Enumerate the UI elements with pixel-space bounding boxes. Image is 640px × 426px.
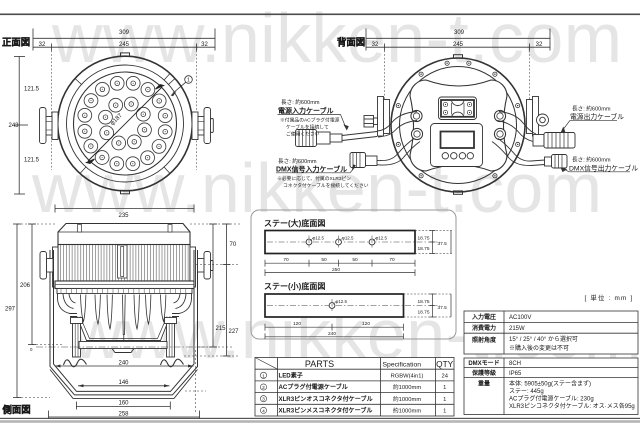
svg-text:約1000mm: 約1000mm [393, 383, 422, 391]
svg-text:消費電力: 消費電力 [472, 324, 496, 332]
svg-text:側面図: 側面図 [2, 404, 31, 415]
svg-text:121.5: 121.5 [24, 158, 40, 164]
svg-text:ステー(大)底面図: ステー(大)底面図 [264, 218, 325, 228]
svg-text:電源入力ケーブル: 電源入力ケーブル [278, 106, 334, 115]
svg-text:146: 146 [118, 380, 129, 386]
svg-text:AC100V: AC100V [509, 315, 531, 321]
svg-text:DMX信号入力ケーブル: DMX信号入力ケーブル [276, 165, 347, 174]
svg-text:120: 120 [362, 321, 370, 327]
svg-text:240: 240 [118, 361, 129, 367]
svg-text:入力電圧: 入力電圧 [471, 313, 496, 321]
svg-text:ステー(小)底面図: ステー(小)底面図 [264, 281, 325, 291]
svg-text:電源出力ケーブル: 電源出力ケーブル [570, 112, 624, 121]
svg-text:18.75: 18.75 [418, 309, 430, 315]
svg-text:245: 245 [119, 42, 130, 48]
svg-text:206: 206 [20, 283, 31, 289]
svg-text:1: 1 [443, 397, 446, 403]
svg-text:50: 50 [352, 257, 358, 263]
svg-text:4: 4 [262, 408, 265, 414]
svg-text:70: 70 [283, 257, 289, 263]
svg-text:DMX信号出力ケーブル: DMX信号出力ケーブル [569, 164, 638, 173]
svg-text:1: 1 [262, 373, 265, 379]
svg-text:215: 215 [216, 326, 227, 332]
svg-text:18.75: 18.75 [418, 246, 430, 252]
svg-text:照射角度: 照射角度 [472, 336, 497, 344]
svg-text:XLR3ピンオスコネクタ付ケーブル: XLR3ピンオスコネクタ付ケーブル [279, 395, 373, 403]
svg-text:297: 297 [5, 307, 16, 313]
svg-text:32: 32 [39, 42, 46, 48]
svg-text:243: 243 [8, 123, 19, 129]
svg-text:約1000mm: 約1000mm [393, 407, 422, 415]
svg-text:50: 50 [321, 257, 327, 263]
svg-text:121.5: 121.5 [24, 87, 40, 93]
svg-text:長さ: 約600mm: 長さ: 約600mm [281, 98, 320, 106]
svg-text:258: 258 [118, 411, 129, 417]
svg-text:φ12.5: φ12.5 [336, 299, 348, 304]
svg-text:1: 1 [443, 385, 446, 391]
svg-text:37.5: 37.5 [438, 241, 448, 247]
svg-text:32: 32 [536, 42, 543, 48]
svg-text:背面図: 背面図 [337, 37, 365, 48]
svg-text:LED素子: LED素子 [279, 372, 303, 380]
svg-text:37.5: 37.5 [438, 305, 448, 311]
svg-text:保護等級: 保護等級 [471, 369, 496, 377]
svg-text:18.75: 18.75 [418, 235, 430, 241]
svg-text:15° / 25° / 40° から選択可: 15° / 25° / 40° から選択可 [509, 335, 578, 343]
svg-text:約1000mm: 約1000mm [393, 395, 422, 403]
svg-text:250: 250 [332, 267, 340, 273]
svg-text:70: 70 [389, 257, 395, 263]
svg-text:235: 235 [118, 213, 129, 219]
svg-text:コネクタ付ケーブルを接続してください: コネクタ付ケーブルを接続してください [283, 182, 369, 189]
svg-text:長さ: 約600mm: 長さ: 約600mm [572, 105, 611, 113]
svg-text:正面図: 正面図 [2, 37, 30, 48]
svg-text:1: 1 [443, 409, 446, 415]
svg-text:重量: 重量 [478, 380, 490, 388]
svg-text:※購入後の変更は不可: ※購入後の変更は不可 [509, 344, 569, 352]
svg-text:PARTS: PARTS [305, 359, 334, 369]
svg-text:Specification: Specification [383, 361, 422, 368]
svg-text:24: 24 [441, 374, 448, 380]
svg-text:2: 2 [262, 385, 265, 391]
svg-text:QTY: QTY [436, 359, 454, 369]
svg-text:※付属品のACプラグ付電源: ※付属品のACプラグ付電源 [280, 117, 340, 124]
svg-text:[ 単位 : mm ]: [ 単位 : mm ] [584, 293, 633, 302]
svg-text:長さ: 約600mm: 長さ: 約600mm [572, 156, 611, 164]
svg-text:ACプラグ付電源ケーブル: ACプラグ付電源ケーブル [279, 383, 348, 391]
svg-text:160: 160 [118, 401, 129, 407]
svg-text:長さ: 約600mm: 長さ: 約600mm [278, 157, 317, 165]
svg-text:1: 1 [187, 78, 190, 84]
svg-text:DMXモード: DMXモード [468, 360, 499, 367]
svg-text:245: 245 [453, 42, 464, 48]
svg-text:70: 70 [230, 242, 237, 248]
svg-text:120: 120 [293, 321, 301, 327]
svg-text:227: 227 [229, 329, 240, 335]
svg-text:φ12.5: φ12.5 [376, 236, 388, 241]
svg-text:本体: 5905±50g(ステー含まず): 本体: 5905±50g(ステー含まず) [509, 380, 591, 388]
svg-text:18.75: 18.75 [418, 299, 430, 305]
svg-text:XLR3ピンコネクタ付ケーブル: オス·メス各95g: XLR3ピンコネクタ付ケーブル: オス·メス各95g [509, 402, 635, 410]
svg-text:φ12.5: φ12.5 [313, 236, 325, 241]
svg-text:ステー: 445g: ステー: 445g [509, 388, 544, 395]
svg-text:240: 240 [328, 331, 336, 337]
svg-text:ケーブルを接続して: ケーブルを接続して [286, 124, 329, 131]
svg-text:XLR3ピンメスコネクタ付ケーブル: XLR3ピンメスコネクタ付ケーブル [279, 407, 373, 415]
svg-text:32: 32 [372, 42, 379, 48]
svg-text:RGBW(4in1): RGBW(4in1) [391, 374, 424, 380]
svg-text:※必要に応じて、付属のXLR3ピン: ※必要に応じて、付属のXLR3ピン [277, 175, 351, 182]
svg-text:ACプラグ付電源ケーブル: 230g: ACプラグ付電源ケーブル: 230g [509, 395, 594, 403]
svg-text:8CH: 8CH [509, 361, 521, 367]
svg-text:3: 3 [262, 397, 265, 403]
svg-text:309: 309 [454, 30, 465, 36]
svg-text:309: 309 [119, 30, 130, 36]
svg-text:IP65: IP65 [509, 371, 522, 377]
svg-text:32: 32 [201, 42, 208, 48]
svg-text:φ12.5: φ12.5 [342, 236, 354, 241]
svg-text:ご使用ください: ご使用ください [286, 131, 320, 138]
svg-text:215W: 215W [509, 326, 525, 332]
